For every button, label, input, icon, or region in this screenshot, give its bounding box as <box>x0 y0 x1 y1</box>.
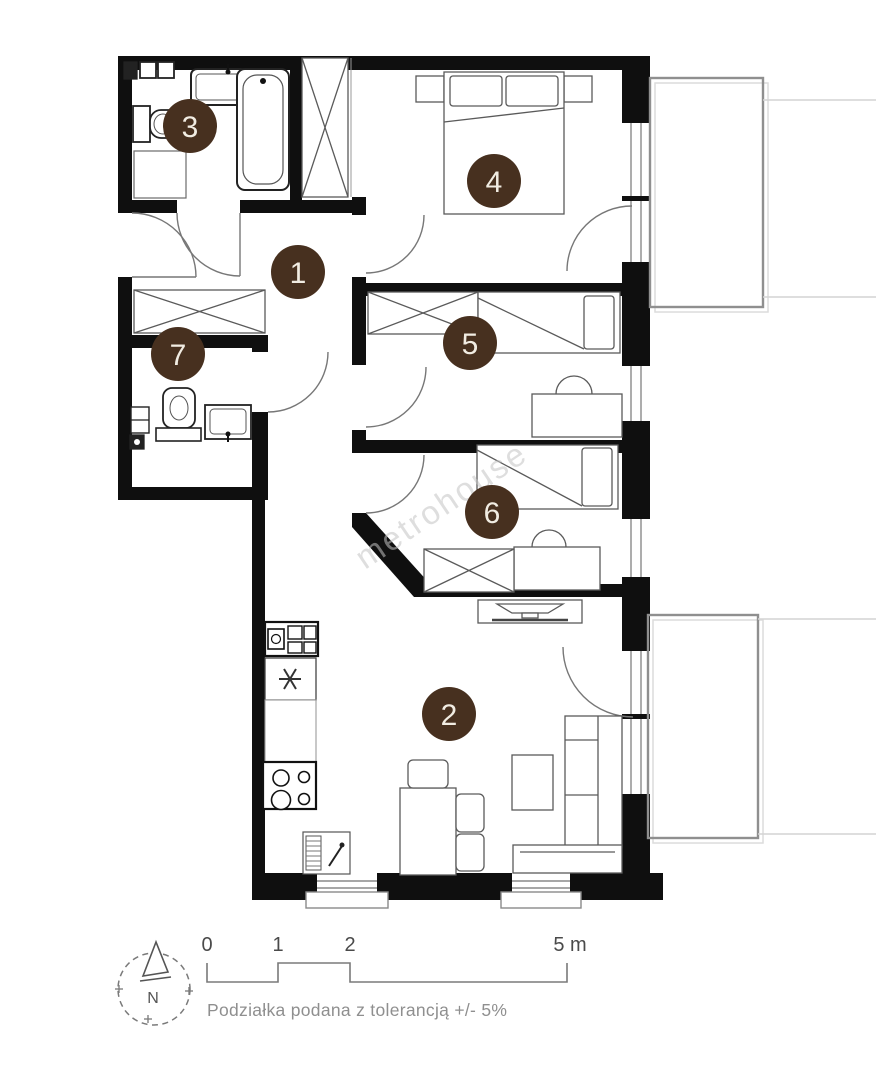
scale-tick-5m: 5 m <box>553 934 586 956</box>
scale-tick-1: 1 <box>272 934 283 956</box>
chair <box>456 794 484 832</box>
chair <box>556 376 592 394</box>
desk <box>514 547 600 590</box>
room-marker: 6 <box>465 485 519 539</box>
kitchen <box>263 622 350 874</box>
room-marker: 2 <box>422 687 476 741</box>
room-marker: 3 <box>163 99 217 153</box>
room-number: 6 <box>484 497 501 530</box>
hallway-closet <box>134 290 265 333</box>
room-marker: 1 <box>271 245 325 299</box>
shower-cabinet <box>134 151 186 198</box>
toilet <box>133 106 150 142</box>
floor-plan-drawing: metrohouse 1 2 3 4 5 6 7 <box>0 0 876 1080</box>
tv-cabinet <box>478 600 582 623</box>
bathroom-door-arc <box>177 213 240 276</box>
side-table <box>512 755 553 810</box>
chair <box>456 834 484 871</box>
room-marker: 5 <box>443 316 497 370</box>
neighbor-lines <box>758 100 876 834</box>
north-arrow-icon: N <box>115 942 193 1025</box>
room-number: 4 <box>486 166 503 199</box>
sofa-chaise <box>513 845 622 873</box>
balcony-top <box>650 78 763 307</box>
desk <box>532 394 622 437</box>
room5-furniture <box>368 292 622 437</box>
room-marker: 7 <box>151 327 205 381</box>
nightstand <box>564 76 592 102</box>
sofa <box>565 716 622 848</box>
room-number: 3 <box>182 111 199 144</box>
room-number: 1 <box>290 257 307 290</box>
scale-tick-0: 0 <box>201 934 212 956</box>
wc-door-arc <box>268 352 328 412</box>
nightstand <box>416 76 444 102</box>
counter <box>265 700 316 762</box>
wc-fixtures <box>130 388 251 449</box>
scale-tick-2: 2 <box>344 934 355 956</box>
room-marker: 4 <box>467 154 521 208</box>
chair <box>532 530 566 547</box>
entrance-door-arc <box>132 213 196 277</box>
balconies <box>648 78 876 843</box>
balcony-bottom <box>648 615 758 838</box>
chair <box>408 760 448 788</box>
scale-bar: 0 1 2 5 m Podziałka podana z tolerancją … <box>201 934 586 1020</box>
dining-set <box>400 760 484 875</box>
room-number: 5 <box>462 328 479 361</box>
room4-door-arc <box>366 215 424 273</box>
sofa-set <box>512 716 622 873</box>
floor-plan-page: metrohouse 1 2 3 4 5 6 7 <box>0 0 876 1080</box>
room4-wardrobe <box>302 58 351 197</box>
room5-door-arc <box>366 367 426 427</box>
room-number: 7 <box>170 339 187 372</box>
furniture <box>124 58 622 875</box>
room-number: 2 <box>441 699 458 732</box>
compass-label: N <box>147 990 159 1007</box>
tolerance-note: Podziałka podana z tolerancją +/- 5% <box>207 1000 507 1020</box>
dining-table <box>400 788 456 875</box>
